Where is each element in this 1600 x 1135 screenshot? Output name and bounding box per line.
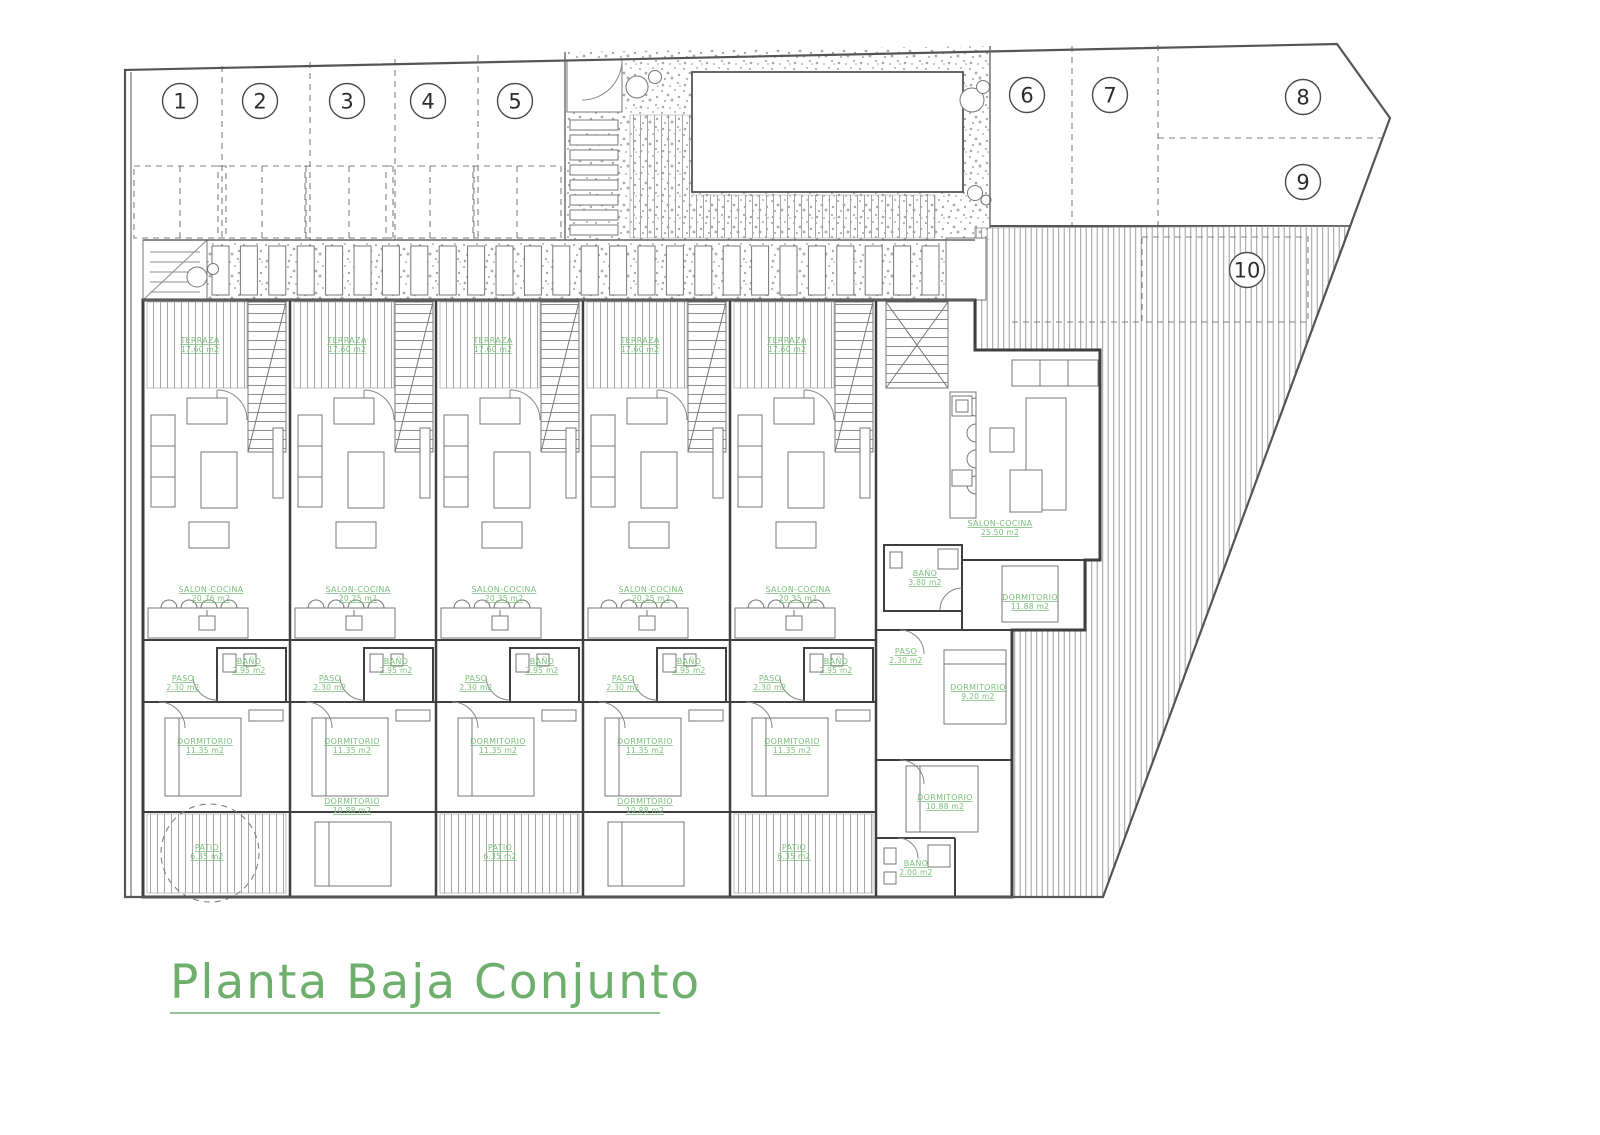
- housing-block: [143, 300, 1100, 902]
- room-label: PATIO6.35 m2: [190, 843, 223, 861]
- bedroom2-unit-4: [608, 822, 684, 886]
- parking-area-right: [990, 44, 1390, 226]
- parking-space-5: 5: [498, 84, 533, 119]
- parking-space-number: 10: [1234, 259, 1261, 283]
- room-label: BAÑO3.80 m2: [908, 568, 941, 587]
- parking-space-number: 1: [173, 90, 186, 114]
- room-label: BAÑO2.00 m2: [899, 858, 932, 877]
- parking-space-10: 10: [1230, 253, 1265, 288]
- room-label: TERRAZA17.60 m2: [472, 336, 512, 354]
- parking-space-1: 1: [163, 84, 198, 119]
- parking-area-left: [125, 52, 565, 240]
- room-label: BAÑO2.95 m2: [525, 656, 558, 675]
- room-label: BAÑO2.95 m2: [232, 656, 265, 675]
- parking-space-number: 6: [1020, 84, 1033, 108]
- room-label: TERRAZA17.60 m2: [326, 336, 366, 354]
- parking-space-number: 9: [1296, 171, 1309, 195]
- room-label: BAÑO2.95 m2: [379, 656, 412, 675]
- parking-space-2: 2: [243, 84, 278, 119]
- room-label: TERRAZA17.60 m2: [179, 336, 219, 354]
- parking-space-number: 7: [1103, 84, 1116, 108]
- walkway-entry-left: [143, 240, 219, 300]
- parking-space-number: 5: [508, 90, 521, 114]
- parking-space-8: 8: [1286, 80, 1321, 115]
- room-label: BAÑO2.95 m2: [819, 656, 852, 675]
- room-label: PATIO6.35 m2: [777, 843, 810, 861]
- plan-title: Planta Baja Conjunto: [170, 955, 701, 1013]
- floor-plan-page: 12345678910 TERRAZA17.60 m2TERRAZA17.60 …: [0, 0, 1600, 1131]
- room-label: TERRAZA17.60 m2: [619, 336, 659, 354]
- room-label: PATIO6.35 m2: [483, 843, 516, 861]
- plan-title-text: Planta Baja Conjunto: [170, 955, 701, 1010]
- room-label: BAÑO2.95 m2: [672, 656, 705, 675]
- parking-space-3: 3: [330, 84, 365, 119]
- parking-space-number: 8: [1296, 86, 1309, 110]
- pool-area: [567, 60, 991, 238]
- parking-space-number: 2: [253, 90, 266, 114]
- parking-space-9: 9: [1286, 165, 1321, 200]
- parking-space-6: 6: [1010, 78, 1045, 113]
- walkway-entry-right: [946, 238, 986, 300]
- bedroom2-unit-2: [315, 822, 391, 886]
- parking-space-number: 4: [421, 90, 434, 114]
- pool-room: [567, 60, 622, 112]
- parking-space-4: 4: [411, 84, 446, 119]
- parking-space-number: 3: [340, 90, 353, 114]
- floor-plan-drawing: 12345678910 TERRAZA17.60 m2TERRAZA17.60 …: [0, 0, 1600, 1131]
- room-label: TERRAZA17.60 m2: [766, 336, 806, 354]
- swimming-pool: [692, 72, 963, 192]
- parking-space-7: 7: [1093, 78, 1128, 113]
